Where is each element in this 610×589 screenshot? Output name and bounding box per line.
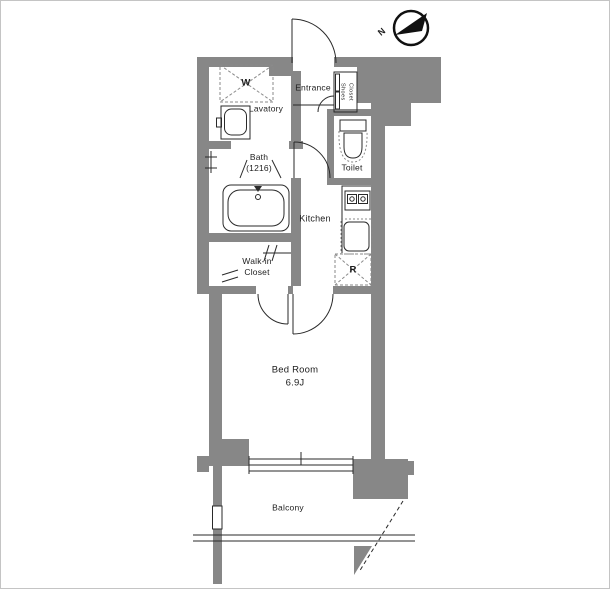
bathtub (223, 185, 289, 231)
compass-icon (394, 11, 428, 45)
column-bottom-right-nub (408, 461, 414, 475)
refrigerator-label: R (349, 265, 356, 276)
walkin-closet-label: Walk-in Closet (242, 256, 271, 278)
bath-label-line2: (1216) (246, 163, 272, 174)
balcony-corner-wall (354, 546, 372, 575)
walkin-closet-label-line2: Closet (242, 267, 271, 278)
balcony-diagonal-edge (359, 501, 403, 572)
washer-label: W (241, 78, 250, 89)
column-bottom-left-nub (197, 456, 209, 472)
shoes-closet-label: Shoes Closet (339, 83, 354, 101)
wall-closet-bottom (197, 286, 256, 294)
wall-hall-lavatory (291, 71, 301, 141)
bedroom-label: Bed Room 6.9J (272, 365, 318, 390)
shoes-closet-label-line1: Shoes (339, 83, 346, 101)
wall-kitchen-bottom (333, 286, 385, 294)
wall-balcony-left-upper (213, 466, 222, 506)
wall-toilet-left (327, 109, 334, 185)
stove-burners (345, 191, 370, 210)
bedroom-label-line1: Bed Room (272, 365, 318, 378)
kitchen-label: Kitchen (299, 214, 330, 225)
balcony-label: Balcony (272, 503, 304, 514)
walkin-closet-label-line1: Walk-in (242, 256, 271, 267)
wall-door-post (288, 286, 293, 294)
column-bottom-right (353, 459, 408, 499)
balcony-railing (193, 535, 415, 541)
wall-toilet-bottom (327, 178, 385, 185)
wall-bath-top-left (197, 141, 231, 149)
toilet-label: Toilet (341, 163, 362, 174)
wall-hall-bath (291, 178, 301, 286)
entrance-label: Entrance (295, 83, 331, 94)
walls (197, 57, 441, 584)
wall-balcony-left-lower (213, 529, 222, 584)
bath-faucet-mark (254, 186, 262, 192)
bedroom-door (293, 294, 333, 334)
wall-mass-top-right (357, 57, 441, 103)
bath-label: Bath (1216) (246, 152, 272, 174)
kitchen-sink (341, 219, 372, 254)
washbasin (217, 106, 251, 139)
lavatory-label: Lavatory (249, 104, 283, 115)
bedroom-window (249, 452, 353, 474)
closet-door (258, 294, 288, 324)
toilet-fixture (339, 120, 367, 162)
wall-bedroom-left (209, 294, 222, 441)
wall-left-upper (197, 57, 209, 294)
balcony-partition-panel (213, 506, 223, 529)
shoes-closet-label-line2: Closet (347, 83, 354, 101)
wall-bath-bottom (197, 233, 291, 242)
floorplan-canvas: N Entrance Shoes Closet Lavatory W Bath … (0, 0, 610, 589)
bedroom-label-size: 6.9J (272, 377, 318, 390)
bath-label-line1: Bath (246, 152, 272, 163)
column-bottom-left (209, 439, 249, 466)
